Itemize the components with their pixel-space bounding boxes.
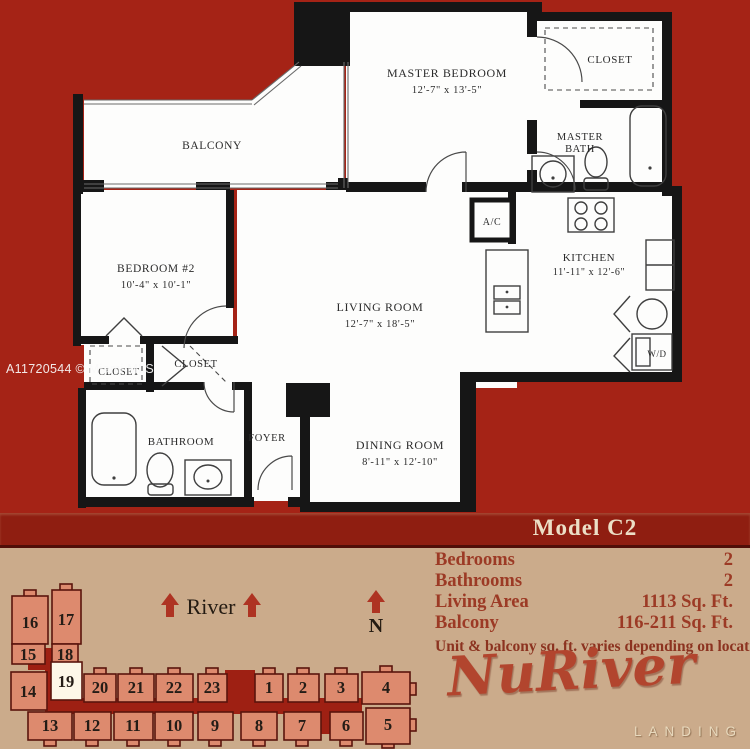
- details-section: River N 16: [0, 548, 750, 749]
- site-unit-15: 15: [12, 644, 45, 664]
- label-balcony: BALCONY: [182, 140, 242, 152]
- label-bathroom: BATHROOM: [148, 436, 215, 448]
- label-living-room: LIVING ROOM: [337, 300, 424, 314]
- label-master-closet: CLOSET: [587, 54, 632, 66]
- site-unit-3: 3: [325, 674, 358, 702]
- detail-row-bedrooms: Bedrooms 2: [435, 550, 733, 571]
- svg-text:22: 22: [166, 678, 183, 697]
- svg-text:8: 8: [255, 716, 263, 735]
- svg-text:3: 3: [337, 678, 345, 697]
- site-unit-8: 8: [241, 712, 277, 740]
- mls-watermark: A11720544 © Miami MLS: [6, 362, 154, 376]
- label-dining-room-dims: 8'-11" x 12'-10": [362, 457, 438, 468]
- detail-label: Bathrooms: [435, 571, 522, 592]
- label-master-bedroom-dims: 12'-7" x 13'-5": [412, 85, 482, 96]
- site-unit-19-highlighted: 19: [51, 662, 82, 700]
- detail-label: Balcony: [435, 613, 499, 634]
- detail-value: 2: [724, 571, 733, 592]
- north-label: N: [369, 615, 384, 637]
- site-unit-18: 18: [52, 644, 78, 664]
- svg-text:10: 10: [166, 716, 183, 735]
- logo-subtitle: LANDING: [634, 724, 743, 739]
- site-unit-13: 13: [28, 712, 72, 740]
- label-bedroom2: BEDROOM #2: [117, 263, 195, 275]
- svg-text:6: 6: [342, 716, 350, 735]
- svg-text:23: 23: [204, 678, 221, 697]
- model-band: Model C2: [0, 513, 750, 548]
- svg-text:15: 15: [20, 645, 37, 664]
- north-arrow-icon: [367, 590, 385, 613]
- label-dining-room: DINING ROOM: [356, 438, 444, 452]
- listing-floorplan-page: { "floorplan": { "watermark": "A11720544…: [0, 0, 750, 749]
- svg-text:4: 4: [382, 678, 390, 697]
- floorplan-drawing: BALCONY MASTER BEDROOM 12'-7" x 13'-5" C…: [0, 0, 750, 545]
- site-unit-16: 16: [12, 596, 48, 644]
- site-unit-9: 9: [198, 712, 233, 740]
- site-unit-11: 11: [114, 712, 153, 740]
- model-name: Model C2: [430, 515, 740, 541]
- svg-text:21: 21: [128, 678, 145, 697]
- svg-text:12: 12: [84, 716, 101, 735]
- label-master-bath-2: BATH: [565, 144, 595, 155]
- floorplan-section: BALCONY MASTER BEDROOM 12'-7" x 13'-5" C…: [0, 0, 750, 545]
- site-unit-4: 4: [362, 672, 410, 704]
- site-unit-22: 22: [156, 674, 193, 702]
- detail-value: 116-211 Sq. Ft.: [617, 613, 733, 634]
- label-hall-closet: CLOSET: [174, 359, 217, 370]
- label-living-room-dims: 12'-7" x 18'-5": [345, 319, 415, 330]
- label-bedroom2-dims: 10'-4" x 10'-1": [121, 280, 191, 291]
- svg-text:13: 13: [42, 716, 59, 735]
- svg-text:1: 1: [265, 678, 273, 697]
- svg-text:9: 9: [211, 716, 219, 735]
- site-unit-1: 1: [255, 674, 283, 702]
- detail-label: Living Area: [435, 592, 529, 613]
- site-unit-20: 20: [84, 674, 116, 702]
- label-master-bath-1: MASTER: [557, 132, 603, 143]
- svg-text:7: 7: [298, 716, 306, 735]
- logo-name: NuRiver: [445, 632, 696, 709]
- svg-text:16: 16: [22, 613, 39, 632]
- siteplan-drawing: River N 16: [0, 580, 430, 749]
- site-unit-2: 2: [288, 674, 319, 702]
- label-ac: A/C: [483, 217, 501, 228]
- site-unit-14: 14: [11, 672, 47, 710]
- svg-text:14: 14: [20, 682, 37, 701]
- detail-row-bathrooms: Bathrooms 2: [435, 571, 733, 592]
- detail-value: 2: [724, 550, 733, 571]
- svg-text:5: 5: [384, 715, 392, 734]
- compass: River N: [161, 590, 385, 637]
- river-arrow-left-icon: [161, 593, 179, 617]
- site-unit-23: 23: [198, 674, 227, 702]
- site-unit-7: 7: [284, 712, 321, 740]
- site-unit-10: 10: [155, 712, 193, 740]
- label-wd: W/D: [647, 349, 666, 359]
- river-label: River: [187, 594, 237, 619]
- label-foyer: FOYER: [248, 433, 285, 444]
- label-kitchen-dims: 11'-11" x 12'-6": [553, 267, 625, 278]
- svg-text:17: 17: [58, 610, 75, 629]
- label-kitchen: KITCHEN: [563, 252, 615, 264]
- svg-text:20: 20: [92, 678, 109, 697]
- svg-text:2: 2: [299, 678, 307, 697]
- detail-row-living-area: Living Area 1113 Sq. Ft.: [435, 592, 733, 613]
- site-unit-5: 5: [366, 708, 410, 744]
- label-master-bedroom: MASTER BEDROOM: [387, 66, 507, 80]
- detail-label: Bedrooms: [435, 550, 515, 571]
- svg-text:18: 18: [57, 645, 74, 664]
- detail-value: 1113 Sq. Ft.: [642, 592, 734, 613]
- svg-text:11: 11: [125, 716, 141, 735]
- nuriver-logo: NuRiver LANDING: [425, 648, 745, 747]
- site-unit-21: 21: [118, 674, 154, 702]
- site-unit-12: 12: [74, 712, 111, 740]
- site-unit-6: 6: [330, 712, 363, 740]
- site-unit-17: 17: [52, 590, 81, 644]
- river-arrow-right-icon: [243, 593, 261, 617]
- svg-text:19: 19: [58, 672, 75, 691]
